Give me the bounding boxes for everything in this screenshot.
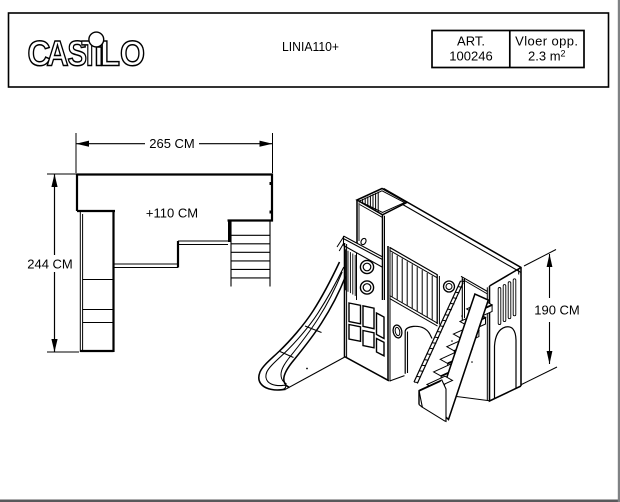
svg-text:Vloer opp.: Vloer opp. [515, 33, 578, 48]
svg-text:244 CM: 244 CM [27, 257, 73, 272]
svg-text:2.3 m2: 2.3 m2 [528, 48, 566, 63]
svg-text:A: A [47, 35, 69, 74]
svg-text:100246: 100246 [449, 48, 492, 63]
svg-text:O: O [120, 35, 145, 74]
svg-text:190 CM: 190 CM [534, 303, 580, 318]
svg-text:+110 CM: +110 CM [146, 206, 198, 221]
svg-text:265 CM: 265 CM [149, 136, 195, 151]
svg-text:ART.: ART. [457, 33, 485, 48]
svg-text:LINIA110+: LINIA110+ [282, 39, 339, 54]
